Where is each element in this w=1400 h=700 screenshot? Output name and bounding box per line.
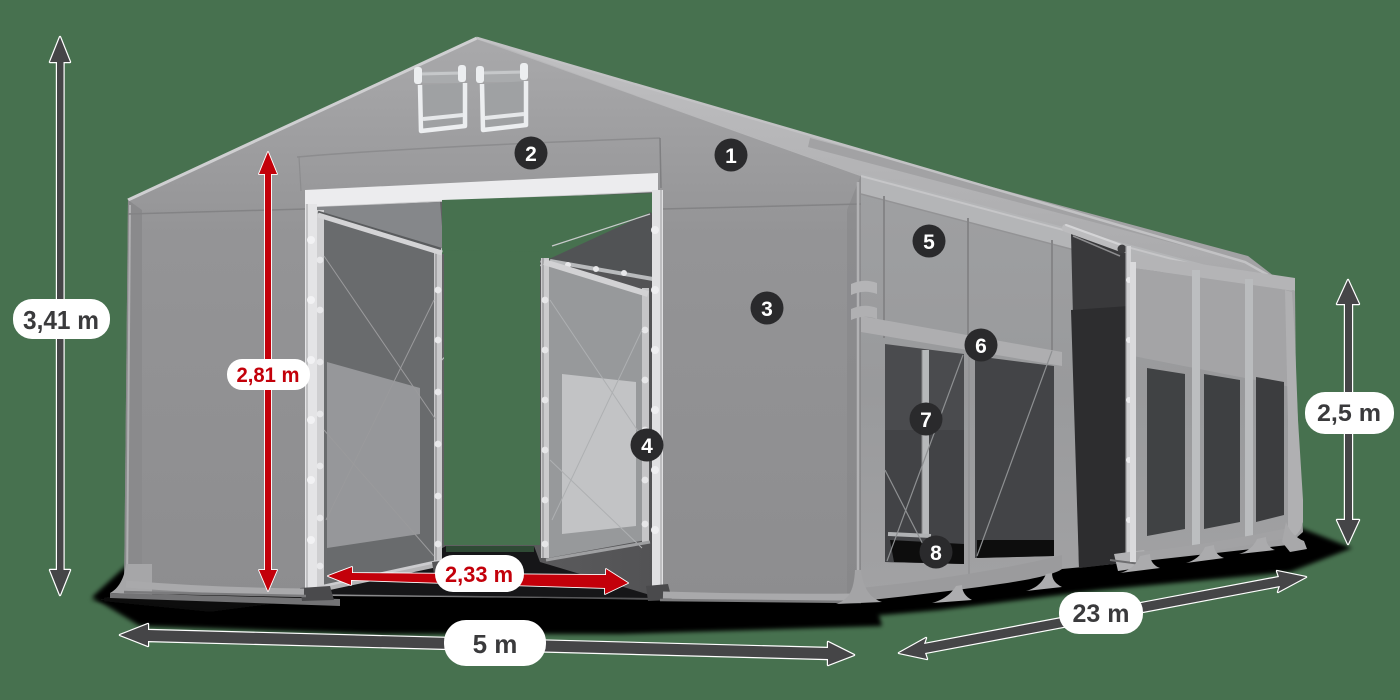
svg-text:5 m: 5 m <box>473 629 518 659</box>
svg-text:8: 8 <box>930 542 942 565</box>
svg-text:2: 2 <box>525 143 537 166</box>
svg-text:3: 3 <box>761 298 773 321</box>
svg-text:3,41 m: 3,41 m <box>23 305 99 335</box>
svg-text:4: 4 <box>641 435 653 458</box>
svg-text:2,5 m: 2,5 m <box>1317 400 1381 427</box>
svg-text:6: 6 <box>975 335 987 358</box>
svg-text:2,81 m: 2,81 m <box>237 364 300 387</box>
svg-text:7: 7 <box>920 409 932 432</box>
svg-text:23 m: 23 m <box>1073 600 1130 628</box>
svg-text:5: 5 <box>923 231 935 254</box>
svg-text:2,33 m: 2,33 m <box>445 562 513 587</box>
svg-text:1: 1 <box>725 145 737 168</box>
